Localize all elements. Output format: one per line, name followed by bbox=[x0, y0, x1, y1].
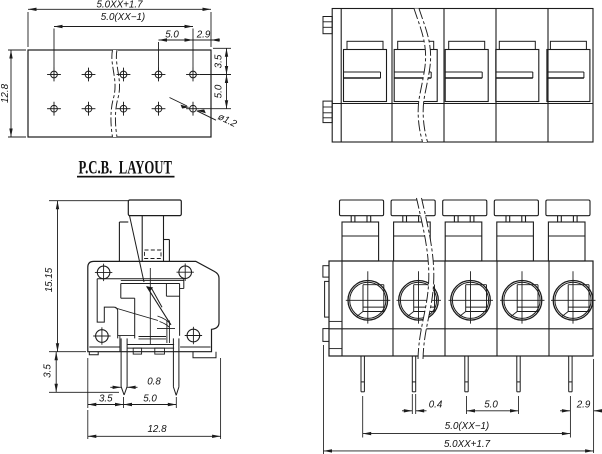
svg-text:2.9: 2.9 bbox=[196, 30, 211, 41]
svg-text:5.0XX+1.7: 5.0XX+1.7 bbox=[96, 0, 143, 10]
svg-text:5.0XX+1.7: 5.0XX+1.7 bbox=[444, 439, 491, 450]
svg-text:3.5: 3.5 bbox=[99, 394, 113, 405]
svg-text:15.15: 15.15 bbox=[44, 267, 55, 292]
svg-text:3.5: 3.5 bbox=[213, 54, 224, 68]
svg-text:0.8: 0.8 bbox=[147, 376, 161, 387]
svg-text:P.C.B. LAYOUT: P.C.B. LAYOUT bbox=[79, 159, 173, 179]
svg-text:5.0: 5.0 bbox=[213, 84, 224, 98]
svg-text:5.0(XX−1): 5.0(XX−1) bbox=[101, 12, 145, 23]
svg-text:3.5: 3.5 bbox=[43, 364, 54, 378]
svg-text:12.8: 12.8 bbox=[147, 424, 167, 435]
svg-text:2.9: 2.9 bbox=[576, 399, 591, 410]
svg-text:5.0: 5.0 bbox=[165, 30, 179, 41]
svg-text:0.4: 0.4 bbox=[429, 399, 443, 410]
svg-text:5.0: 5.0 bbox=[484, 399, 498, 410]
svg-text:5.0: 5.0 bbox=[143, 394, 157, 405]
svg-text:12.8: 12.8 bbox=[0, 83, 11, 103]
svg-text:5.0(XX−1): 5.0(XX−1) bbox=[445, 421, 489, 432]
